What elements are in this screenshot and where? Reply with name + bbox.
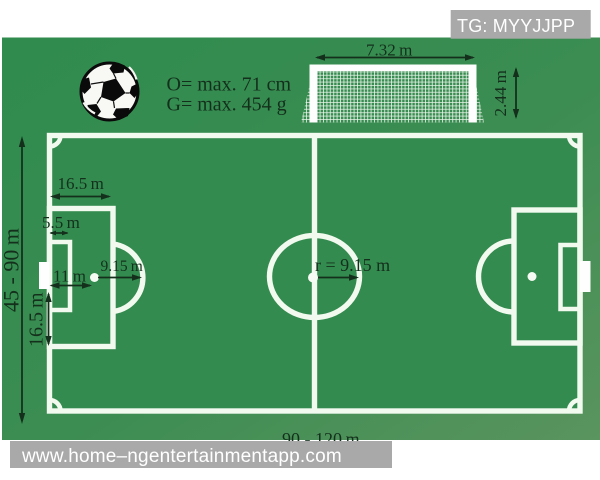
svg-text:16.5 m: 16.5 m bbox=[26, 292, 48, 347]
svg-text:16.5 m: 16.5 m bbox=[58, 174, 104, 193]
svg-text:2.44 m: 2.44 m bbox=[491, 70, 510, 116]
svg-text:www.home–ngentertainmentapp.co: www.home–ngentertainmentapp.com bbox=[21, 446, 342, 467]
svg-text:G= max. 454 g: G= max. 454 g bbox=[167, 94, 287, 116]
svg-text:TG: MYYJJPP: TG: MYYJJPP bbox=[457, 16, 575, 36]
svg-text:45 - 90 m: 45 - 90 m bbox=[0, 228, 24, 312]
svg-text:11 m: 11 m bbox=[53, 267, 86, 286]
svg-text:O= max. 71 cm: O= max. 71 cm bbox=[167, 74, 292, 96]
svg-text:5.5 m: 5.5 m bbox=[42, 213, 80, 232]
svg-text:7.32 m: 7.32 m bbox=[366, 41, 412, 60]
svg-text:r = 9.15 m: r = 9.15 m bbox=[315, 255, 390, 275]
svg-text:9.15 m: 9.15 m bbox=[101, 258, 143, 275]
